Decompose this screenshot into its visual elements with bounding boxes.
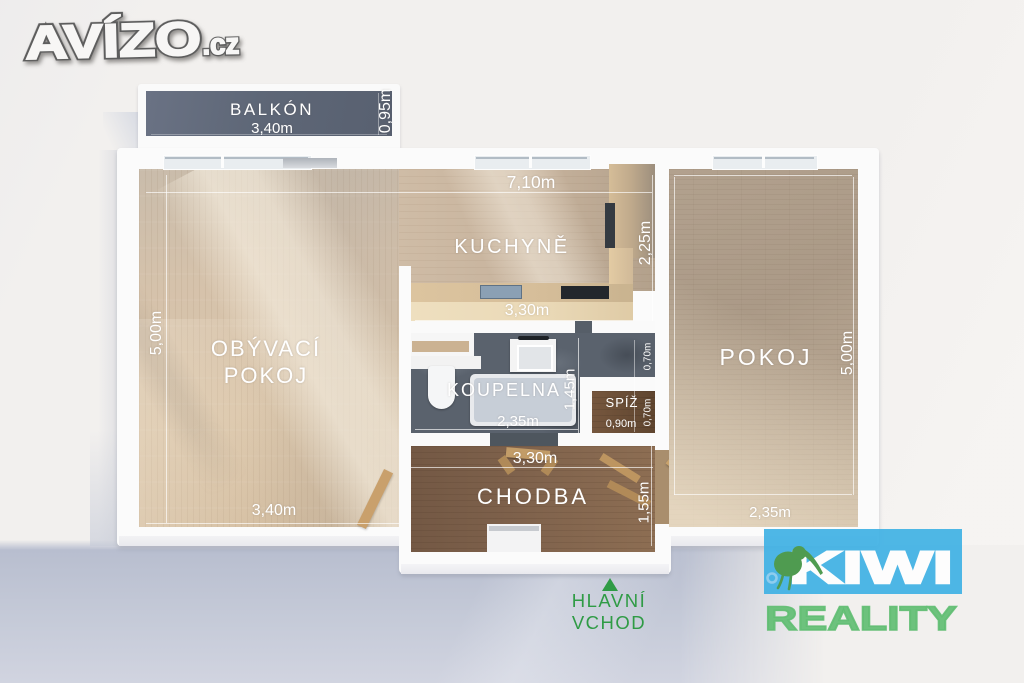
svg-text:AVÍZO: AVÍZO <box>24 11 201 69</box>
svg-text:.cz: .cz <box>202 28 240 61</box>
svg-text:REALITY: REALITY <box>765 600 957 638</box>
